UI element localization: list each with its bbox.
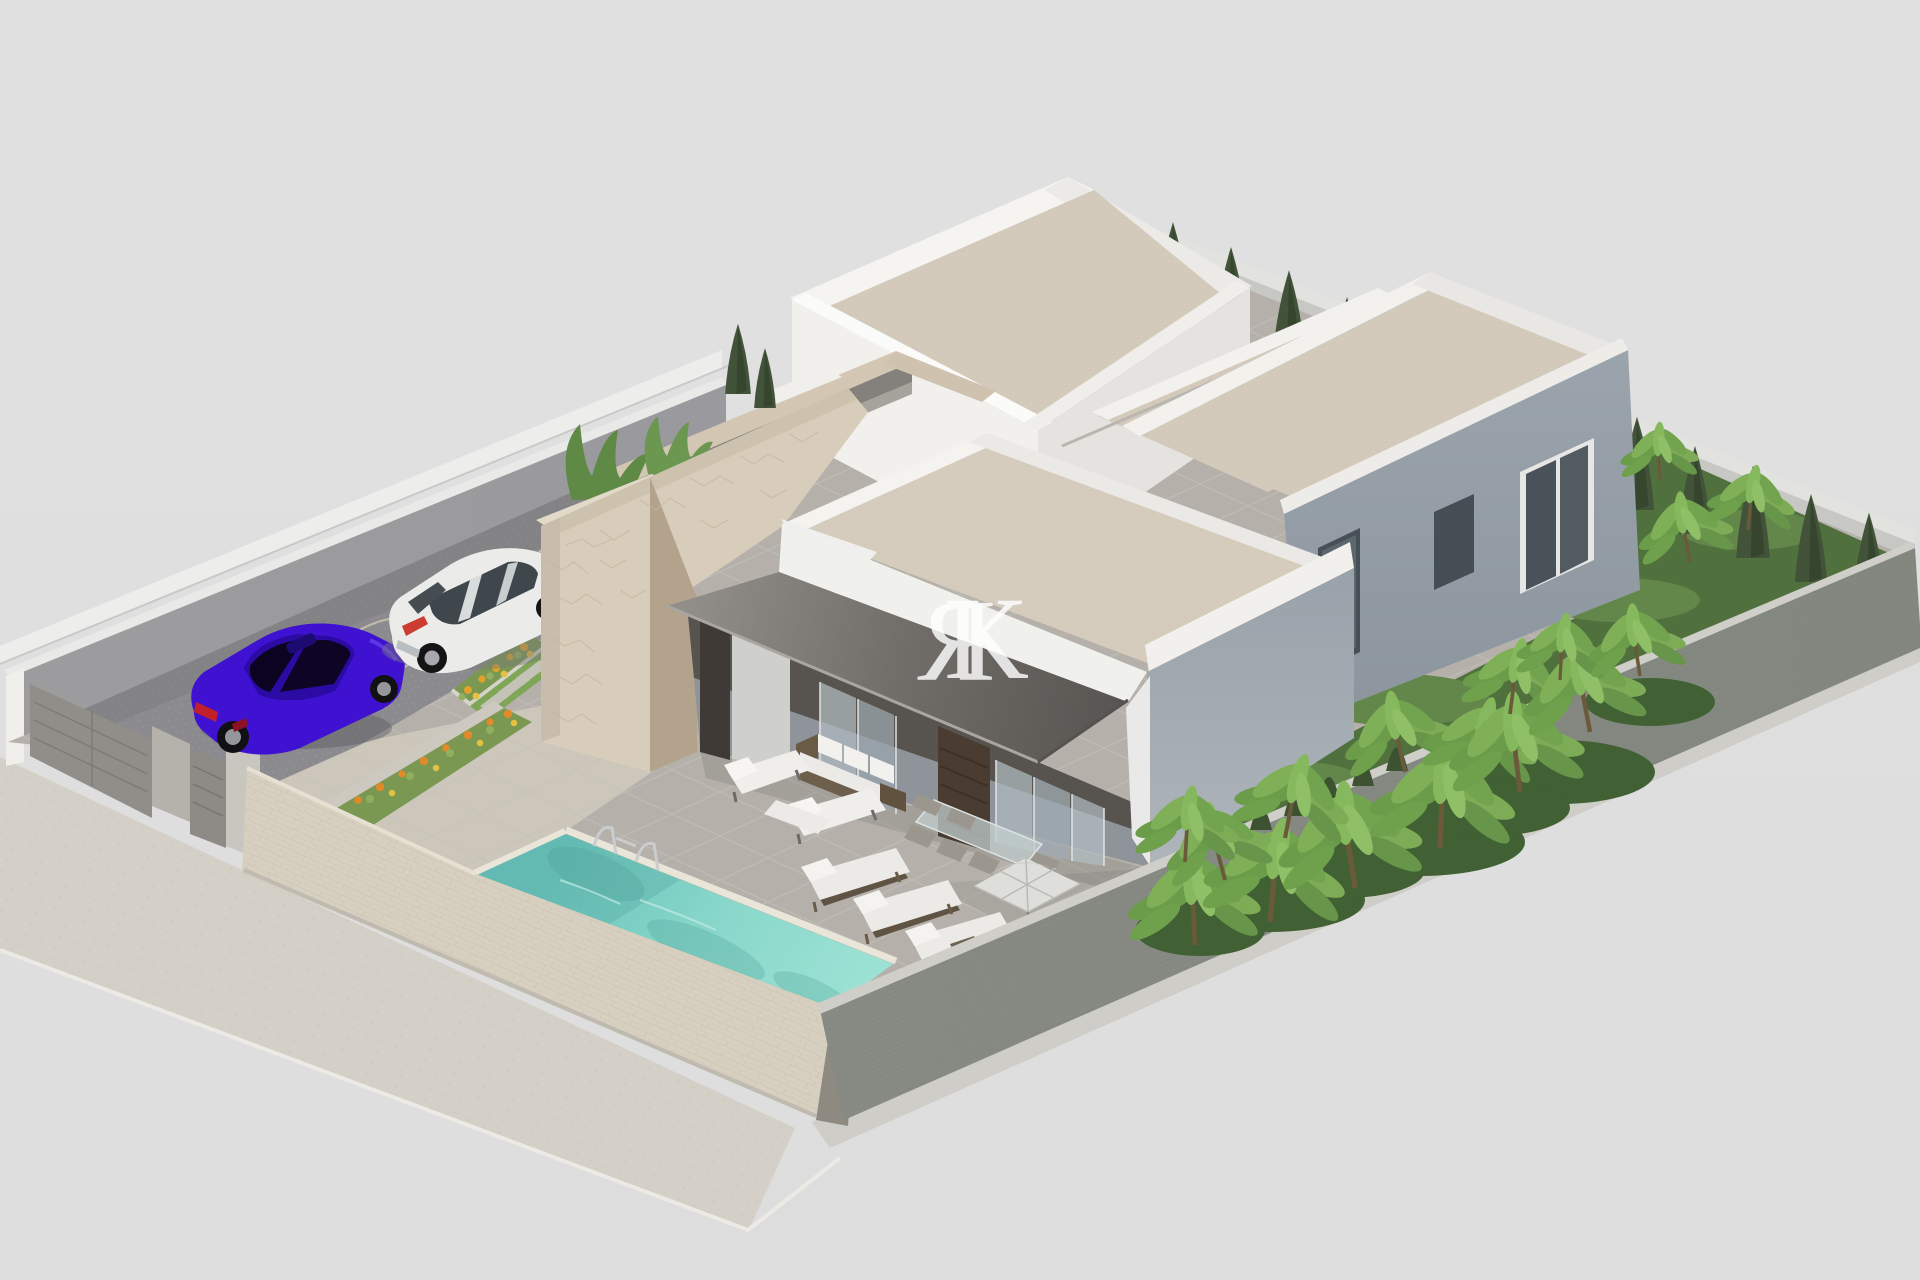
svg-text:K: K (944, 573, 1029, 704)
